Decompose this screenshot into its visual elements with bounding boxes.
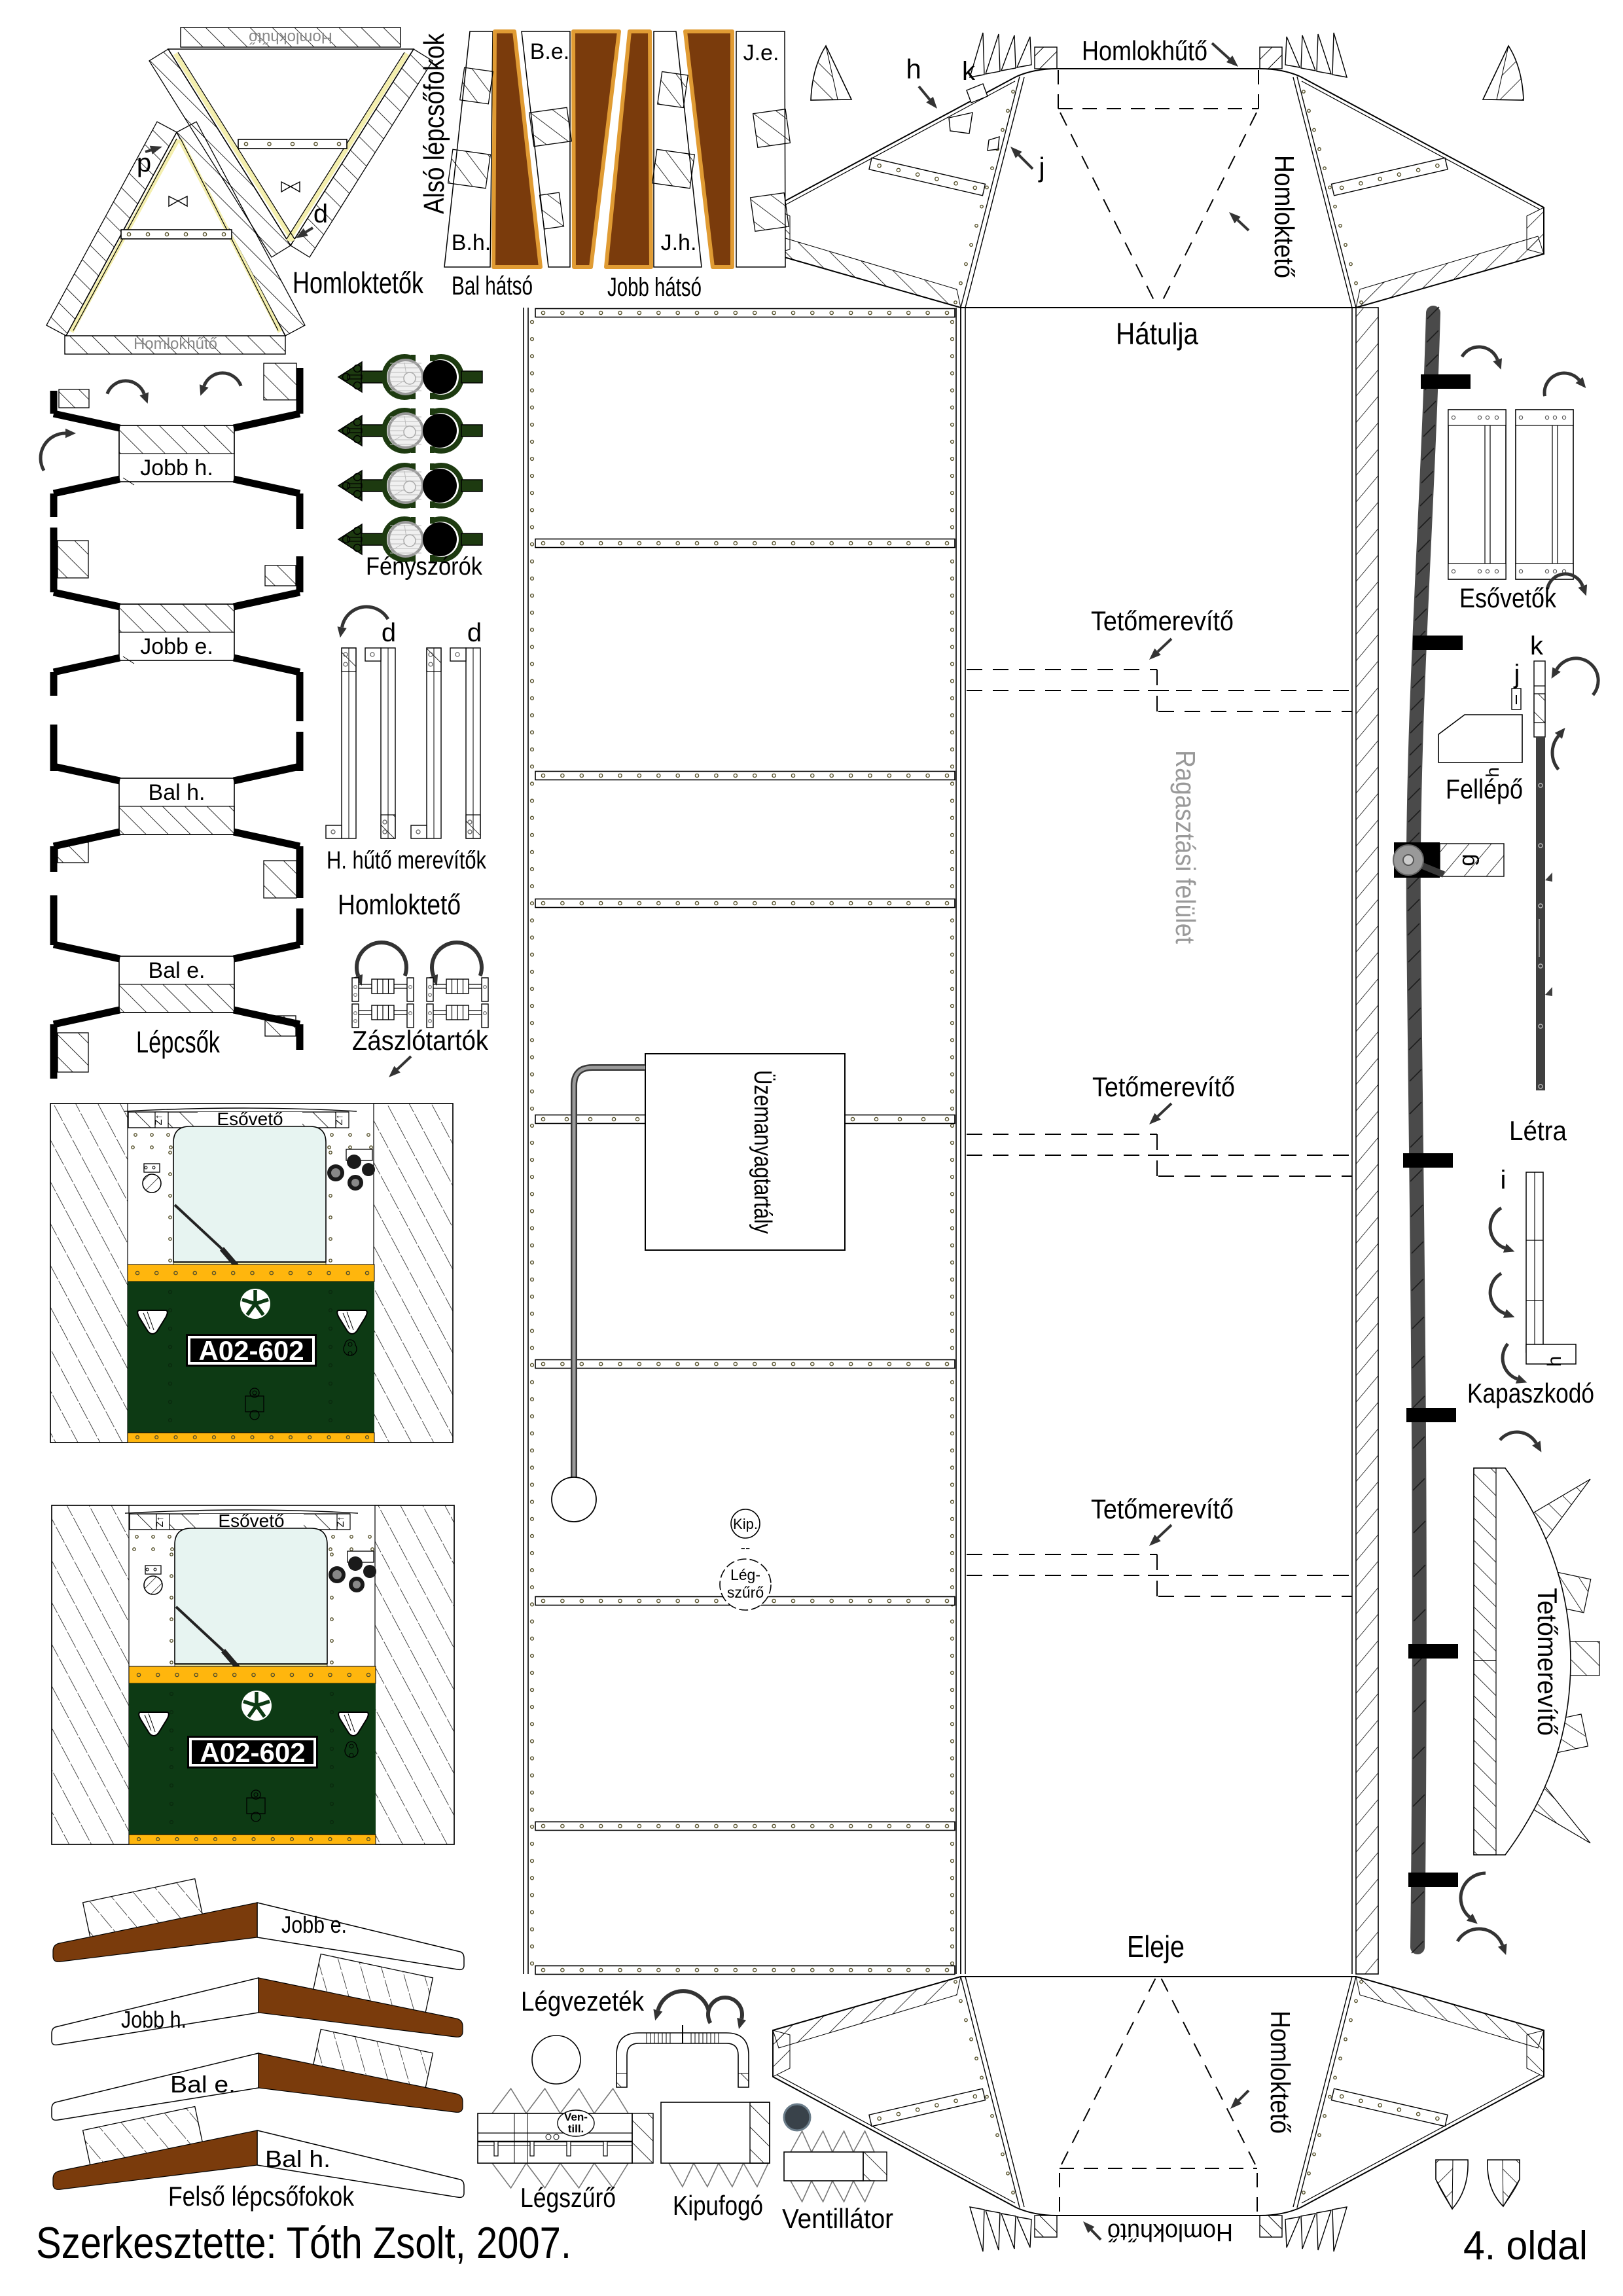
svg-text:p: p <box>137 149 151 177</box>
svg-text:Jobb h.: Jobb h. <box>140 456 213 480</box>
svg-text:Bal h.: Bal h. <box>265 2145 330 2172</box>
svg-text:Fényszórók: Fényszórók <box>366 553 483 581</box>
svg-text:J.e.: J.e. <box>743 41 779 65</box>
svg-text:i: i <box>1501 1166 1507 1194</box>
svg-text:Homloktető: Homloktető <box>1269 155 1300 278</box>
svg-text:Ventillátor: Ventillátor <box>782 2203 893 2234</box>
svg-text:Homloktető: Homloktető <box>1265 2011 1296 2134</box>
svg-text:Homlokhűtő: Homlokhűtő <box>134 335 217 353</box>
svg-text:Kip.: Kip. <box>733 1516 758 1532</box>
svg-text:Légvezeték: Légvezeték <box>521 1986 645 2017</box>
svg-text:Eleje: Eleje <box>1127 1929 1185 1964</box>
svg-text:k: k <box>1530 632 1544 660</box>
svg-text:h: h <box>1544 1356 1565 1367</box>
svg-text:d: d <box>313 200 328 228</box>
svg-text:Jobb hátsó: Jobb hátsó <box>607 273 702 302</box>
svg-text:Hátulja: Hátulja <box>1116 317 1198 351</box>
svg-text:Kipufogó: Kipufogó <box>673 2190 763 2221</box>
svg-text:till.: till. <box>568 2123 584 2135</box>
svg-text:Tetőmerevítő: Tetőmerevítő <box>1092 1071 1235 1102</box>
svg-text:h: h <box>906 54 921 84</box>
svg-text:j: j <box>1514 660 1520 689</box>
svg-text:Tetőmerevítő: Tetőmerevítő <box>1091 605 1234 636</box>
svg-text:Esővetők: Esővetők <box>1459 583 1557 613</box>
svg-text:Lég-: Lég- <box>730 1566 760 1583</box>
svg-text:J.h.: J.h. <box>661 230 697 255</box>
svg-text:j: j <box>1037 152 1044 183</box>
svg-text:H. hűtő merevítők: H. hűtő merevítők <box>327 847 487 874</box>
svg-text:--: -- <box>741 1539 751 1556</box>
svg-text:Létra: Létra <box>1509 1115 1567 1146</box>
svg-text:d: d <box>467 619 482 647</box>
svg-text:Bal h.: Bal h. <box>149 780 205 805</box>
svg-text:Homloktető: Homloktető <box>338 889 461 921</box>
svg-text:B.h.: B.h. <box>452 230 491 255</box>
svg-text:Homlokhűtő: Homlokhűtő <box>249 29 332 46</box>
svg-text:Légszűrő: Légszűrő <box>520 2182 616 2213</box>
svg-text:Bal hátsó: Bal hátsó <box>452 272 533 300</box>
svg-text:Bal e.: Bal e. <box>170 2071 236 2098</box>
svg-text:szűrő: szűrő <box>727 1584 764 1601</box>
svg-text:A02-602: A02-602 <box>198 1335 304 1366</box>
svg-text:Üzemanyagtartály: Üzemanyagtartály <box>749 1070 776 1234</box>
svg-text:Szerkesztette: Tóth Zsolt, 200: Szerkesztette: Tóth Zsolt, 2007. <box>36 2218 571 2268</box>
svg-text:Tetőmerevítő: Tetőmerevítő <box>1532 1588 1563 1736</box>
svg-text:B.e.: B.e. <box>530 39 569 64</box>
svg-text:Lépcsők: Lépcsők <box>136 1025 221 1059</box>
svg-text:Jobb e.: Jobb e. <box>281 1911 347 1938</box>
svg-text:Z↑: Z↑ <box>154 1516 166 1528</box>
svg-text:Z↑: Z↑ <box>153 1115 164 1126</box>
svg-text:Ragasztási felület: Ragasztási felület <box>1170 750 1201 944</box>
svg-text:Kapaszkodó: Kapaszkodó <box>1467 1378 1594 1408</box>
svg-text:Z↑: Z↑ <box>334 1115 345 1126</box>
svg-text:Ven-: Ven- <box>564 2111 588 2123</box>
svg-text:Tetőmerevítő: Tetőmerevítő <box>1091 1494 1234 1524</box>
svg-text:d: d <box>382 619 396 647</box>
svg-text:g: g <box>1455 854 1480 867</box>
svg-text:Fellépő: Fellépő <box>1446 774 1523 804</box>
svg-text:Felső lépcsőfokok: Felső lépcsőfokok <box>168 2181 355 2212</box>
svg-text:Bal e.: Bal e. <box>149 958 205 983</box>
svg-text:k: k <box>962 57 976 86</box>
svg-text:Homlokhűtő: Homlokhűtő <box>1107 2218 1233 2246</box>
svg-text:Zászlótartók: Zászlótartók <box>352 1025 489 1056</box>
svg-text:Homlokhűtő: Homlokhűtő <box>1082 35 1207 66</box>
svg-text:Jobb h.: Jobb h. <box>121 2006 187 2033</box>
svg-text:Z↑: Z↑ <box>335 1516 346 1528</box>
svg-text:A02-602: A02-602 <box>200 1737 305 1768</box>
svg-text:Jobb e.: Jobb e. <box>140 634 213 659</box>
svg-text:Alsó lépcsőfokok: Alsó lépcsőfokok <box>418 33 450 214</box>
svg-text:Homloktetők: Homloktetők <box>293 266 424 300</box>
svg-text:4. oldal: 4. oldal <box>1463 2223 1588 2269</box>
